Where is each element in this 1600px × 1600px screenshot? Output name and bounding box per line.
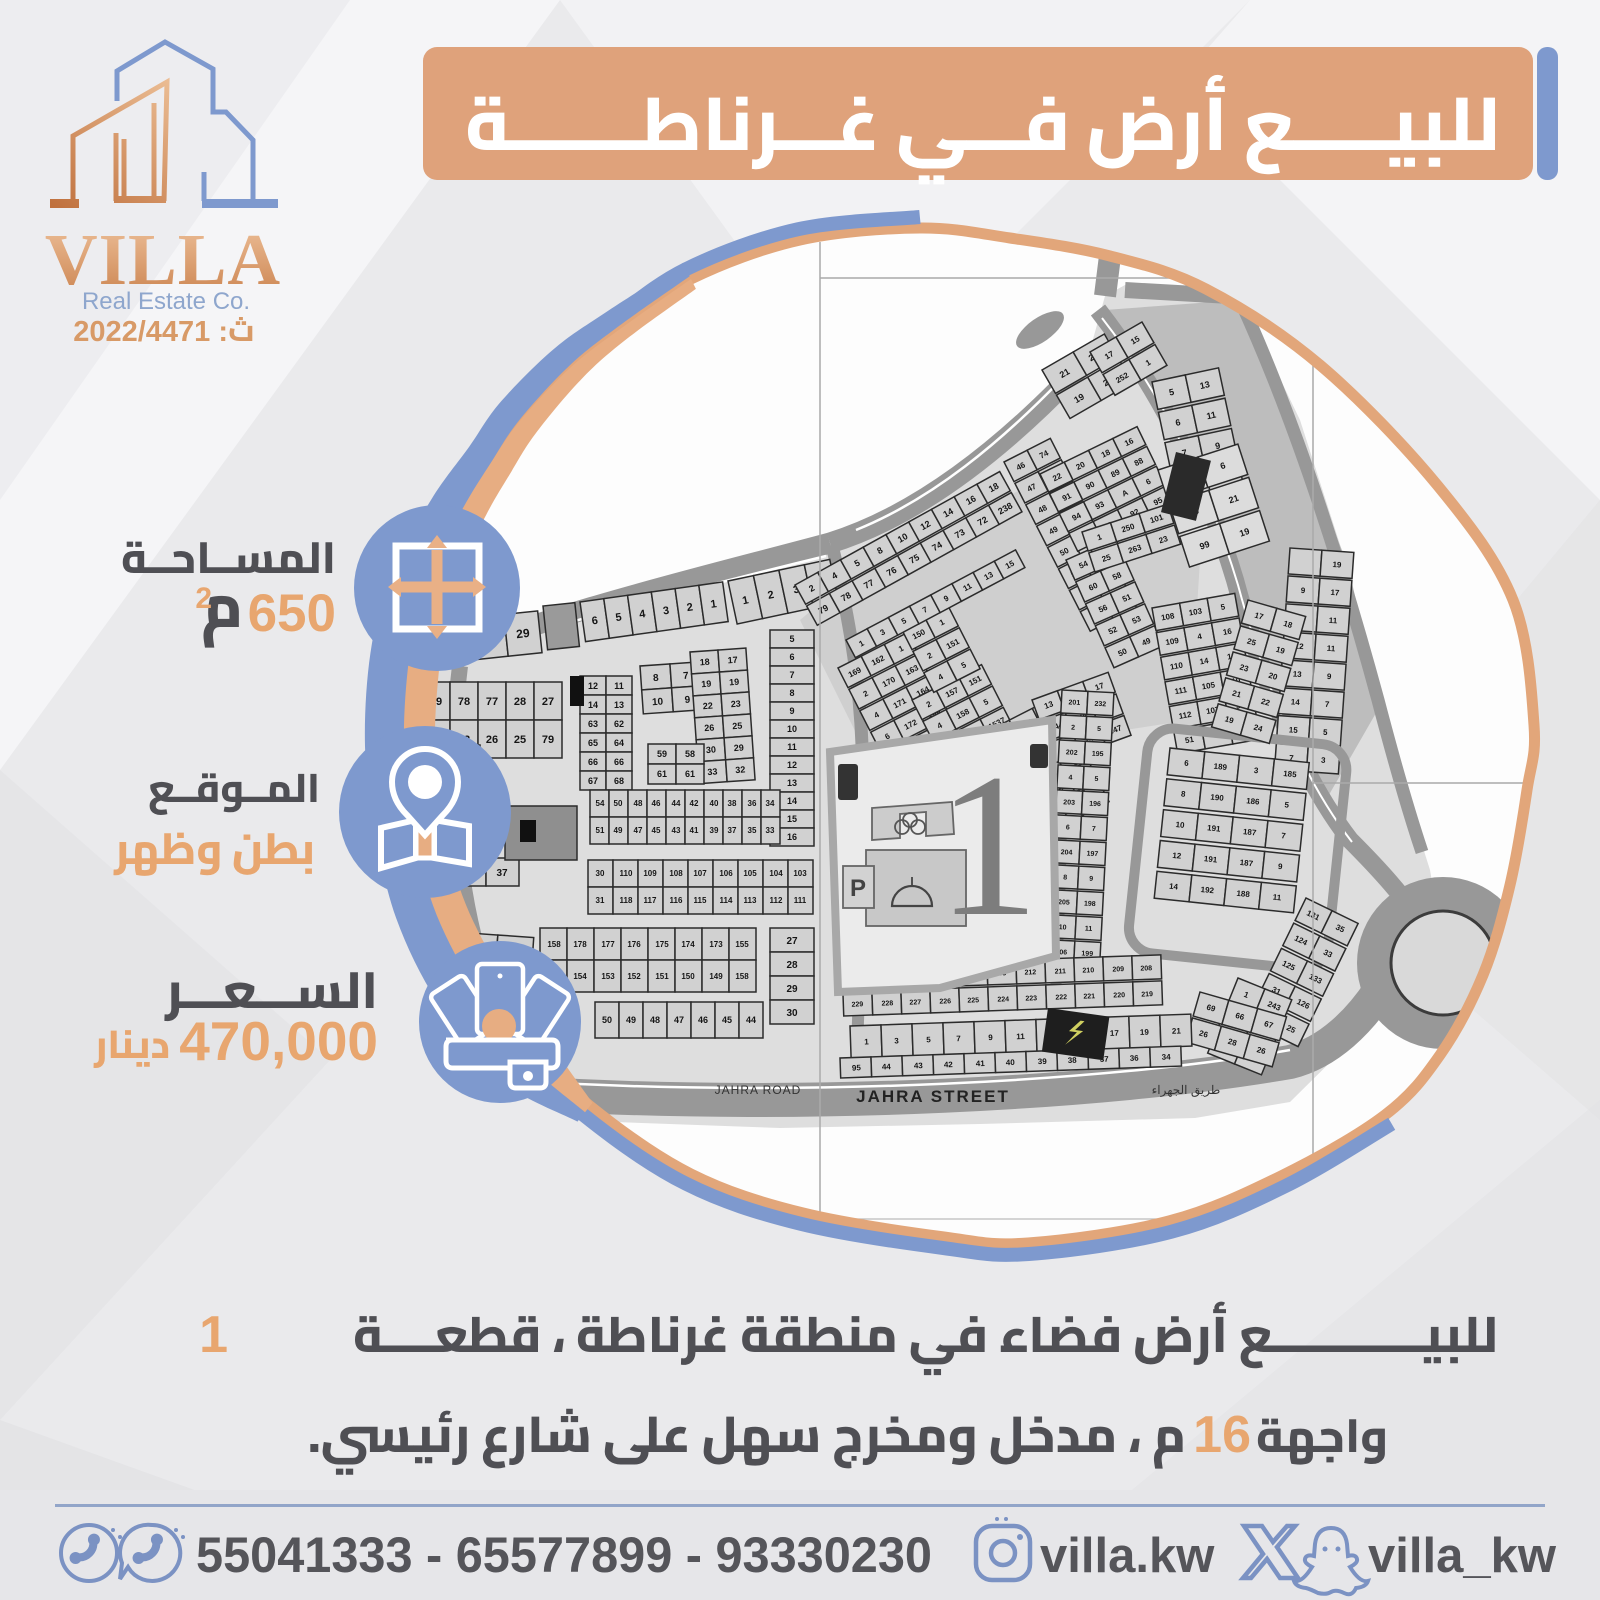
svg-text:12: 12	[787, 760, 797, 770]
svg-text:187: 187	[1243, 827, 1258, 837]
svg-text:JAHRA ROAD: JAHRA ROAD	[715, 1083, 802, 1097]
svg-text:P: P	[850, 875, 866, 902]
svg-text:188: 188	[1236, 889, 1251, 899]
svg-text:51: 51	[596, 826, 605, 835]
svg-text:38: 38	[728, 799, 737, 808]
svg-text:197: 197	[1086, 851, 1098, 859]
svg-text:106: 106	[719, 869, 733, 878]
svg-text:48: 48	[650, 1015, 660, 1025]
svg-text:46: 46	[698, 1015, 708, 1025]
svg-text:49: 49	[614, 826, 623, 835]
svg-text:44: 44	[672, 799, 681, 808]
svg-text:37: 37	[496, 868, 508, 879]
svg-text:13: 13	[1292, 670, 1302, 680]
svg-text:196: 196	[1089, 801, 1101, 809]
svg-text:4: 4	[1068, 774, 1072, 781]
svg-text:villa_kw: villa_kw	[1368, 1529, 1557, 1583]
svg-text:154: 154	[573, 972, 587, 981]
svg-text:79: 79	[542, 734, 554, 746]
svg-text:95: 95	[852, 1063, 862, 1072]
svg-text:39: 39	[710, 826, 719, 835]
svg-text:109: 109	[643, 869, 657, 878]
svg-text:29: 29	[786, 984, 798, 995]
svg-text:44: 44	[882, 1062, 892, 1071]
svg-text:41: 41	[976, 1059, 986, 1068]
svg-text:114: 114	[720, 896, 733, 905]
svg-text:9: 9	[1089, 876, 1093, 883]
svg-text:30: 30	[706, 744, 717, 755]
svg-text:63: 63	[588, 719, 598, 729]
svg-text:202: 202	[1066, 749, 1078, 757]
svg-text:190: 190	[1210, 793, 1225, 803]
svg-text:117: 117	[644, 896, 657, 905]
svg-text:26: 26	[704, 722, 715, 733]
svg-text:طريق الجهراء: طريق الجهراء	[1152, 1083, 1221, 1097]
svg-text:211: 211	[1055, 968, 1067, 975]
svg-text:62: 62	[614, 719, 624, 729]
svg-text:204: 204	[1060, 849, 1072, 857]
svg-text:220: 220	[1113, 992, 1125, 999]
svg-text:67: 67	[588, 776, 598, 786]
svg-text:2022/4471 :: 2022/4471 :	[73, 316, 228, 348]
svg-text:111: 111	[794, 896, 807, 905]
svg-text:186: 186	[1246, 796, 1261, 806]
svg-text:8: 8	[1063, 874, 1067, 881]
svg-text:JAHRA STREET: JAHRA STREET	[856, 1087, 1010, 1106]
svg-text:10: 10	[1058, 924, 1066, 931]
svg-text:7: 7	[1092, 826, 1096, 833]
svg-text:225: 225	[967, 997, 979, 1004]
svg-text:205: 205	[1058, 899, 1070, 907]
svg-text:151: 151	[655, 972, 669, 981]
svg-text:11: 11	[787, 742, 797, 752]
svg-text:9: 9	[789, 706, 794, 716]
svg-text:61: 61	[685, 769, 695, 779]
svg-text:112: 112	[770, 896, 783, 905]
svg-text:29: 29	[516, 626, 531, 641]
svg-text:176: 176	[627, 940, 641, 949]
svg-text:33: 33	[766, 826, 775, 835]
svg-text:34: 34	[766, 799, 775, 808]
svg-text:228: 228	[881, 1000, 893, 1007]
svg-text:45: 45	[652, 826, 661, 835]
svg-text:29: 29	[733, 742, 744, 753]
svg-text:48: 48	[634, 799, 643, 808]
svg-text:42: 42	[944, 1060, 954, 1069]
svg-text:103: 103	[793, 869, 807, 878]
svg-text:222: 222	[1055, 994, 1067, 1001]
svg-text:208: 208	[1140, 965, 1152, 972]
svg-text:25: 25	[732, 721, 743, 732]
svg-text:14: 14	[1290, 697, 1300, 707]
svg-text:158: 158	[547, 940, 561, 949]
svg-text:11: 11	[614, 681, 624, 691]
svg-text:19: 19	[701, 679, 712, 690]
svg-text:173: 173	[709, 940, 723, 949]
svg-text:10: 10	[787, 724, 797, 734]
svg-text:40: 40	[710, 799, 719, 808]
svg-text:17: 17	[1110, 1029, 1120, 1038]
svg-text:224: 224	[997, 996, 1009, 1003]
svg-text:17: 17	[727, 655, 738, 666]
svg-text:8: 8	[789, 688, 794, 698]
svg-text:22: 22	[702, 701, 713, 712]
svg-text:32: 32	[735, 764, 746, 775]
svg-text:44: 44	[746, 1015, 756, 1025]
svg-text:28: 28	[514, 696, 526, 708]
svg-text:1: 1	[199, 1306, 228, 1364]
svg-text:210: 210	[1082, 967, 1094, 974]
svg-text:43: 43	[914, 1061, 924, 1070]
svg-text:191: 191	[1207, 823, 1222, 833]
svg-text:35: 35	[748, 826, 757, 835]
svg-text:107: 107	[693, 869, 707, 878]
svg-text:36: 36	[748, 799, 757, 808]
svg-text:198: 198	[1084, 900, 1096, 908]
svg-text:42: 42	[690, 799, 699, 808]
svg-text:39: 39	[1038, 1057, 1048, 1066]
svg-text:21: 21	[1172, 1026, 1182, 1035]
svg-text:38: 38	[1068, 1056, 1078, 1065]
svg-text:65: 65	[588, 738, 598, 748]
svg-text:37: 37	[728, 826, 737, 835]
svg-text:203: 203	[1063, 799, 1075, 807]
svg-text:77: 77	[486, 696, 498, 708]
svg-text:13: 13	[787, 778, 797, 788]
svg-text:13: 13	[1199, 379, 1211, 391]
svg-text:5: 5	[789, 634, 794, 644]
svg-text:25: 25	[514, 734, 526, 746]
svg-text:villa.kw: villa.kw	[1040, 1529, 1215, 1583]
svg-text:212: 212	[1024, 969, 1036, 976]
svg-text:195: 195	[1092, 751, 1104, 759]
svg-text:10: 10	[652, 696, 664, 708]
svg-text:34: 34	[1162, 1052, 1172, 1061]
svg-text:189: 189	[1213, 762, 1228, 772]
svg-text:155: 155	[735, 940, 749, 949]
svg-text:153: 153	[601, 972, 615, 981]
svg-text:66: 66	[588, 757, 598, 767]
svg-text:14: 14	[588, 700, 598, 710]
svg-text:40: 40	[1006, 1058, 1016, 1067]
svg-text:64: 64	[614, 738, 624, 748]
svg-text:221: 221	[1083, 993, 1095, 1000]
svg-text:16: 16	[787, 832, 797, 842]
svg-text:11: 11	[1272, 893, 1282, 903]
svg-text:11: 11	[1016, 1032, 1025, 1041]
svg-text:5: 5	[1094, 776, 1098, 783]
svg-text:61: 61	[657, 769, 667, 779]
svg-text:11: 11	[1327, 644, 1337, 654]
svg-text:175: 175	[655, 940, 669, 949]
svg-text:26: 26	[486, 734, 498, 746]
svg-text:54: 54	[596, 799, 605, 808]
svg-text:219: 219	[1141, 991, 1153, 998]
svg-text:11: 11	[1085, 926, 1093, 933]
svg-text:191: 191	[1203, 854, 1218, 864]
svg-text:2: 2	[1071, 725, 1075, 732]
svg-text:118: 118	[620, 896, 633, 905]
svg-text:47: 47	[634, 826, 643, 835]
svg-text:Real Estate Co.: Real Estate Co.	[82, 288, 250, 315]
svg-text:149: 149	[709, 972, 723, 981]
svg-text:23: 23	[730, 699, 741, 710]
svg-text:50: 50	[614, 799, 623, 808]
svg-text:55041333 - 65577899 - 93330230: 55041333 - 65577899 - 93330230	[196, 1527, 932, 1583]
svg-text:36: 36	[1130, 1054, 1140, 1063]
svg-text:650: 650	[248, 584, 336, 643]
svg-text:470,000: 470,000	[179, 1010, 378, 1072]
svg-text:7: 7	[789, 670, 794, 680]
svg-text:108: 108	[669, 869, 683, 878]
svg-text:68: 68	[614, 776, 624, 786]
svg-text:178: 178	[573, 940, 587, 949]
svg-text:13: 13	[614, 700, 624, 710]
svg-text:15: 15	[787, 814, 797, 824]
svg-text:12: 12	[588, 681, 598, 691]
svg-text:6: 6	[1066, 824, 1070, 831]
svg-text:229: 229	[851, 1001, 863, 1008]
svg-text:11: 11	[1328, 616, 1338, 626]
svg-text:14: 14	[1169, 882, 1179, 892]
svg-text:59: 59	[657, 749, 667, 759]
svg-text:10: 10	[1175, 820, 1185, 830]
svg-text:18: 18	[699, 657, 710, 668]
svg-text:16: 16	[1193, 1406, 1251, 1464]
svg-text:30: 30	[596, 869, 605, 878]
svg-text:17: 17	[1330, 588, 1340, 598]
svg-text:2: 2	[195, 582, 212, 615]
svg-text:14: 14	[787, 796, 797, 806]
svg-text:43: 43	[672, 826, 681, 835]
svg-text:113: 113	[744, 896, 757, 905]
svg-text:223: 223	[1025, 995, 1037, 1002]
svg-text:158: 158	[735, 972, 749, 981]
svg-text:5: 5	[1097, 726, 1101, 733]
svg-text:66: 66	[614, 757, 624, 767]
svg-text:104: 104	[769, 869, 783, 878]
svg-text:50: 50	[602, 1015, 612, 1025]
svg-text:30: 30	[786, 1008, 798, 1019]
svg-text:232: 232	[1094, 701, 1106, 709]
svg-text:58: 58	[685, 749, 695, 759]
svg-text:209: 209	[1112, 966, 1124, 973]
svg-text:116: 116	[670, 896, 683, 905]
svg-text:226: 226	[939, 998, 951, 1005]
svg-text:174: 174	[681, 940, 695, 949]
svg-text:46: 46	[652, 799, 661, 808]
svg-text:28: 28	[786, 960, 798, 971]
svg-text:152: 152	[627, 972, 641, 981]
svg-text:19: 19	[1140, 1028, 1150, 1037]
svg-text:227: 227	[909, 999, 921, 1006]
svg-text:27: 27	[542, 696, 554, 708]
svg-text:27: 27	[786, 936, 798, 947]
svg-text:201: 201	[1068, 699, 1080, 707]
svg-text:150: 150	[681, 972, 695, 981]
svg-text:41: 41	[690, 826, 699, 835]
svg-text:31: 31	[596, 896, 605, 905]
svg-text:110: 110	[620, 869, 633, 878]
svg-text:19: 19	[1332, 560, 1342, 570]
svg-text:49: 49	[626, 1015, 636, 1025]
svg-text:15: 15	[1289, 725, 1299, 735]
svg-text:33: 33	[707, 766, 718, 777]
svg-text:115: 115	[694, 896, 707, 905]
svg-text:177: 177	[601, 940, 615, 949]
svg-text:192: 192	[1200, 885, 1215, 895]
svg-text:11: 11	[1206, 410, 1217, 422]
svg-text:45: 45	[722, 1015, 732, 1025]
svg-text:1: 1	[937, 732, 1040, 959]
svg-text:187: 187	[1239, 858, 1254, 868]
svg-text:105: 105	[743, 869, 757, 878]
svg-text:12: 12	[1172, 851, 1182, 861]
svg-text:6: 6	[789, 652, 794, 662]
svg-text:78: 78	[458, 696, 470, 708]
svg-text:185: 185	[1283, 769, 1298, 779]
svg-text:47: 47	[674, 1015, 684, 1025]
svg-text:19: 19	[729, 677, 740, 688]
